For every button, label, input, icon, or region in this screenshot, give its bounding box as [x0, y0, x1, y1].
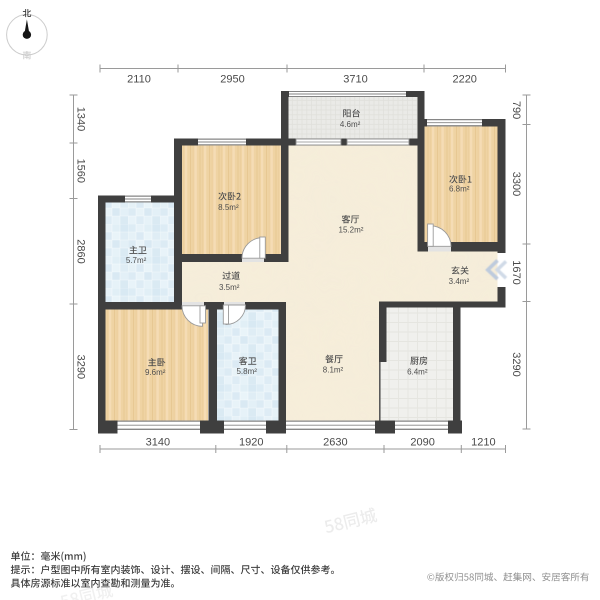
- svg-text:2090: 2090: [410, 437, 434, 449]
- svg-text:1920: 1920: [239, 437, 263, 449]
- svg-text:6.4m²: 6.4m²: [407, 367, 428, 376]
- svg-text:3.5m²: 3.5m²: [219, 283, 240, 292]
- svg-text:5.7m²: 5.7m²: [126, 256, 147, 265]
- svg-text:8.5m²: 8.5m²: [218, 203, 239, 212]
- svg-text:2110: 2110: [127, 73, 151, 85]
- svg-text:8.1m²: 8.1m²: [323, 365, 344, 374]
- svg-text:2630: 2630: [323, 437, 347, 449]
- svg-text:9.6m²: 9.6m²: [145, 368, 166, 377]
- svg-text:790: 790: [510, 101, 522, 119]
- svg-text:1670: 1670: [510, 260, 522, 284]
- svg-text:3300: 3300: [510, 172, 522, 196]
- svg-text:1340: 1340: [75, 107, 87, 131]
- svg-text:3.4m²: 3.4m²: [449, 277, 470, 286]
- svg-text:3290: 3290: [510, 352, 522, 376]
- svg-text:3290: 3290: [75, 355, 87, 379]
- svg-text:5.8m²: 5.8m²: [236, 367, 257, 376]
- svg-text:6.8m²: 6.8m²: [449, 185, 470, 194]
- svg-text:2860: 2860: [75, 239, 87, 263]
- svg-text:15.2m²: 15.2m²: [339, 226, 364, 235]
- svg-text:4.6m²: 4.6m²: [340, 120, 361, 129]
- svg-text:2220: 2220: [452, 73, 476, 85]
- svg-text:2950: 2950: [220, 73, 244, 85]
- svg-text:3710: 3710: [343, 73, 367, 85]
- svg-text:1210: 1210: [471, 437, 495, 449]
- svg-text:1560: 1560: [75, 159, 87, 183]
- svg-text:3140: 3140: [146, 437, 170, 449]
